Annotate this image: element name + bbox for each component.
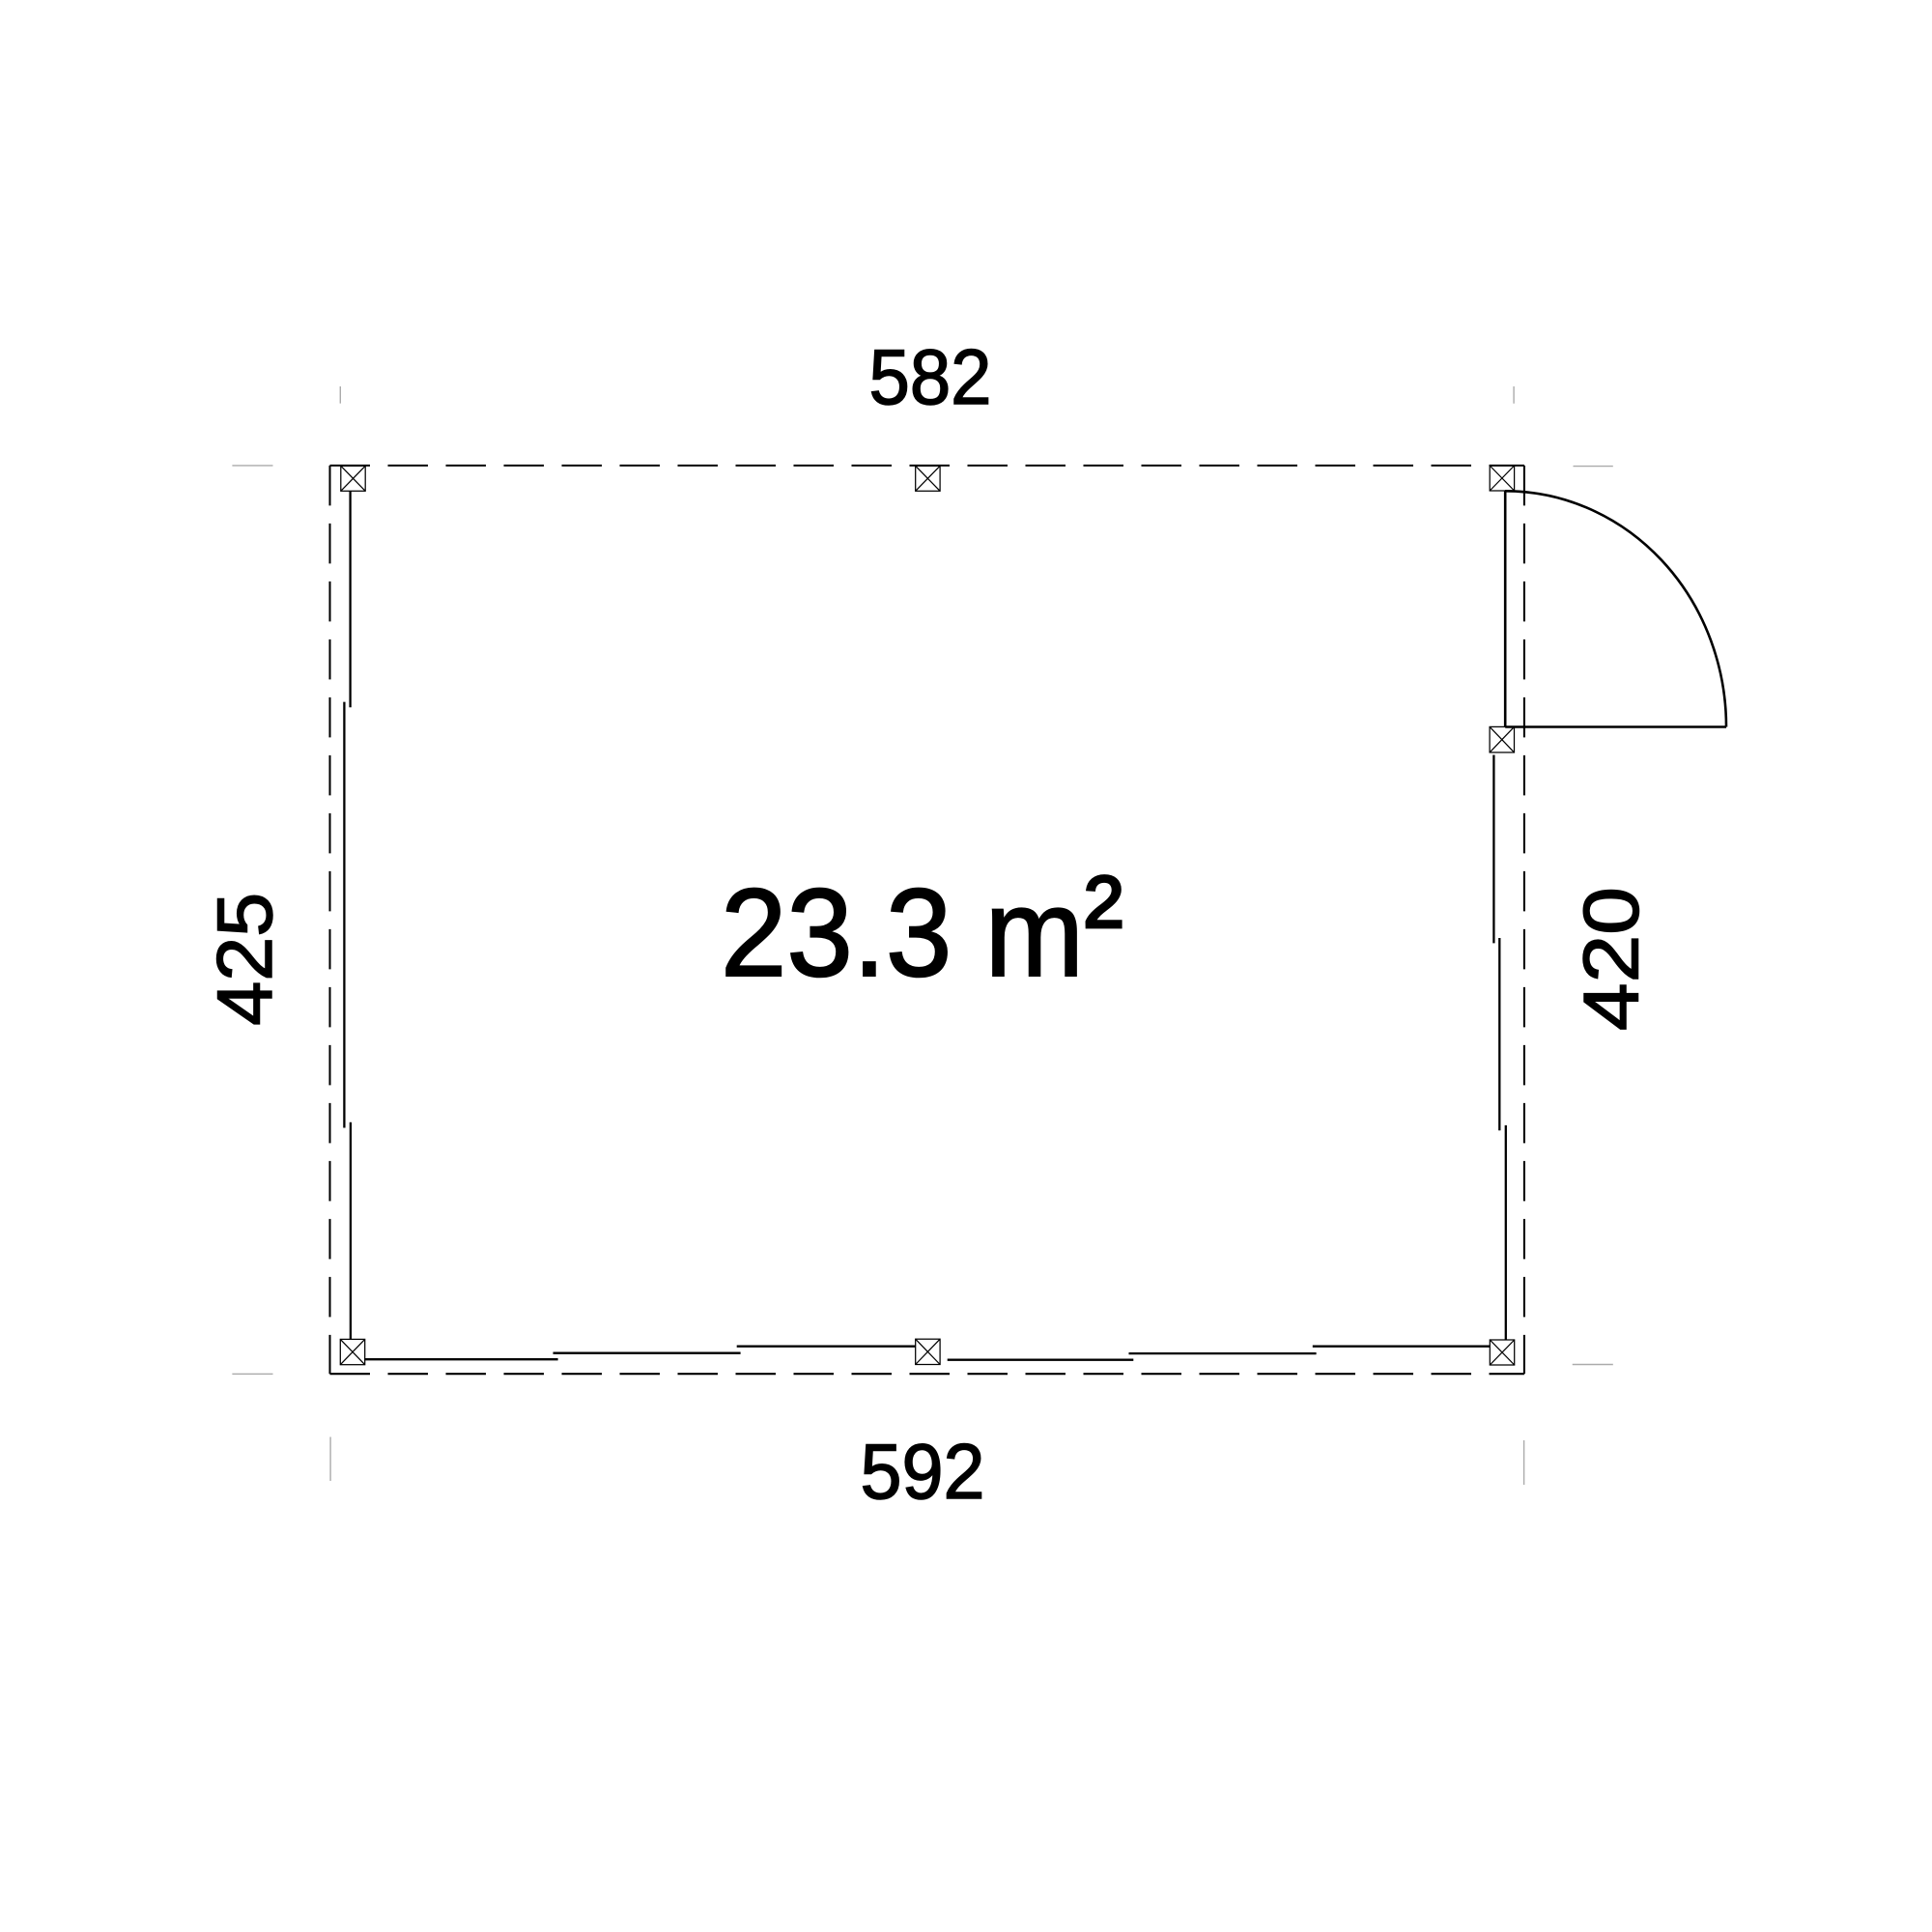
svg-text:425: 425: [202, 893, 289, 1026]
svg-text:582: 582: [869, 334, 992, 421]
svg-text:23.3 m²: 23.3 m²: [721, 850, 1123, 1003]
svg-text:592: 592: [861, 1429, 985, 1516]
svg-text:420: 420: [1569, 887, 1656, 1031]
